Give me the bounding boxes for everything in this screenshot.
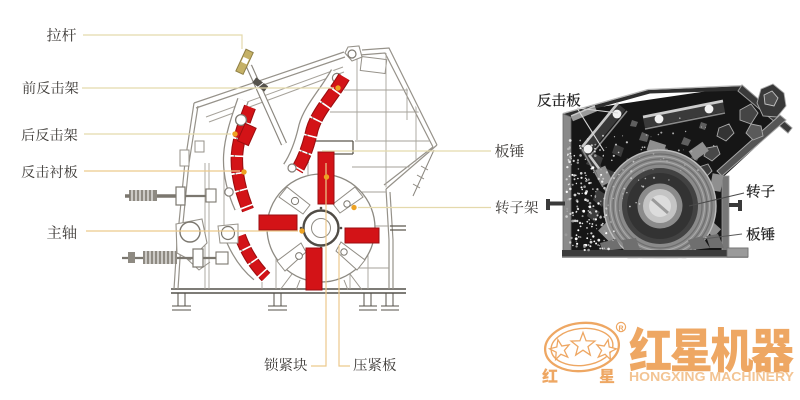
svg-text:HONGXING MACHINERY: HONGXING MACHINERY	[629, 370, 795, 384]
svg-text:R: R	[618, 325, 623, 332]
